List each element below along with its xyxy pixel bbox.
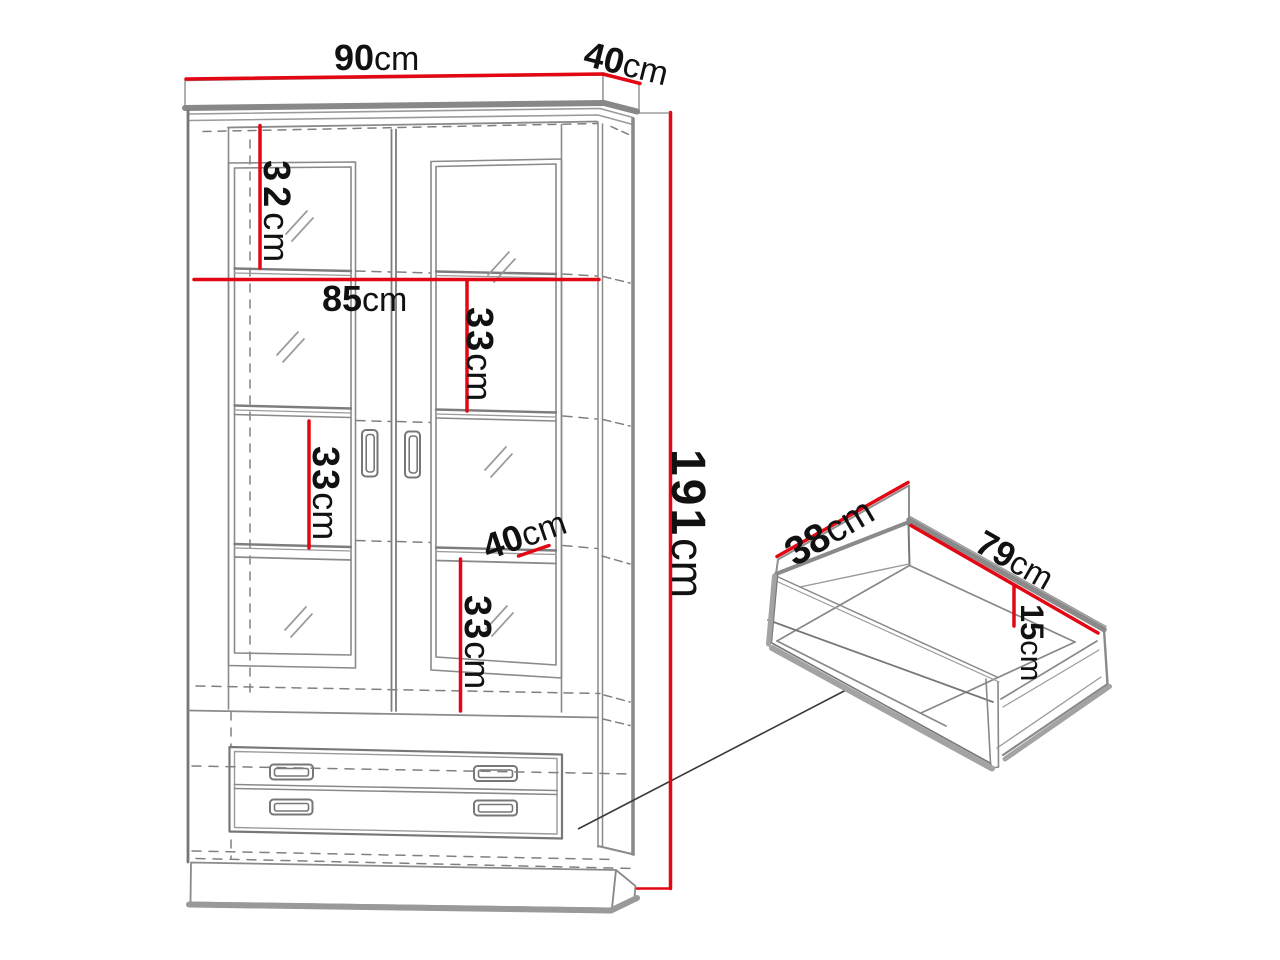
svg-text:33cm: 33cm [304, 446, 346, 540]
svg-text:32cm: 32cm [255, 160, 297, 264]
svg-text:33cm: 33cm [458, 307, 500, 401]
svg-text:191cm: 191cm [661, 449, 714, 598]
svg-text:90cm: 90cm [334, 37, 419, 78]
svg-text:85cm: 85cm [322, 278, 407, 319]
svg-text:33cm: 33cm [456, 595, 498, 689]
svg-text:15cm: 15cm [1014, 604, 1050, 681]
